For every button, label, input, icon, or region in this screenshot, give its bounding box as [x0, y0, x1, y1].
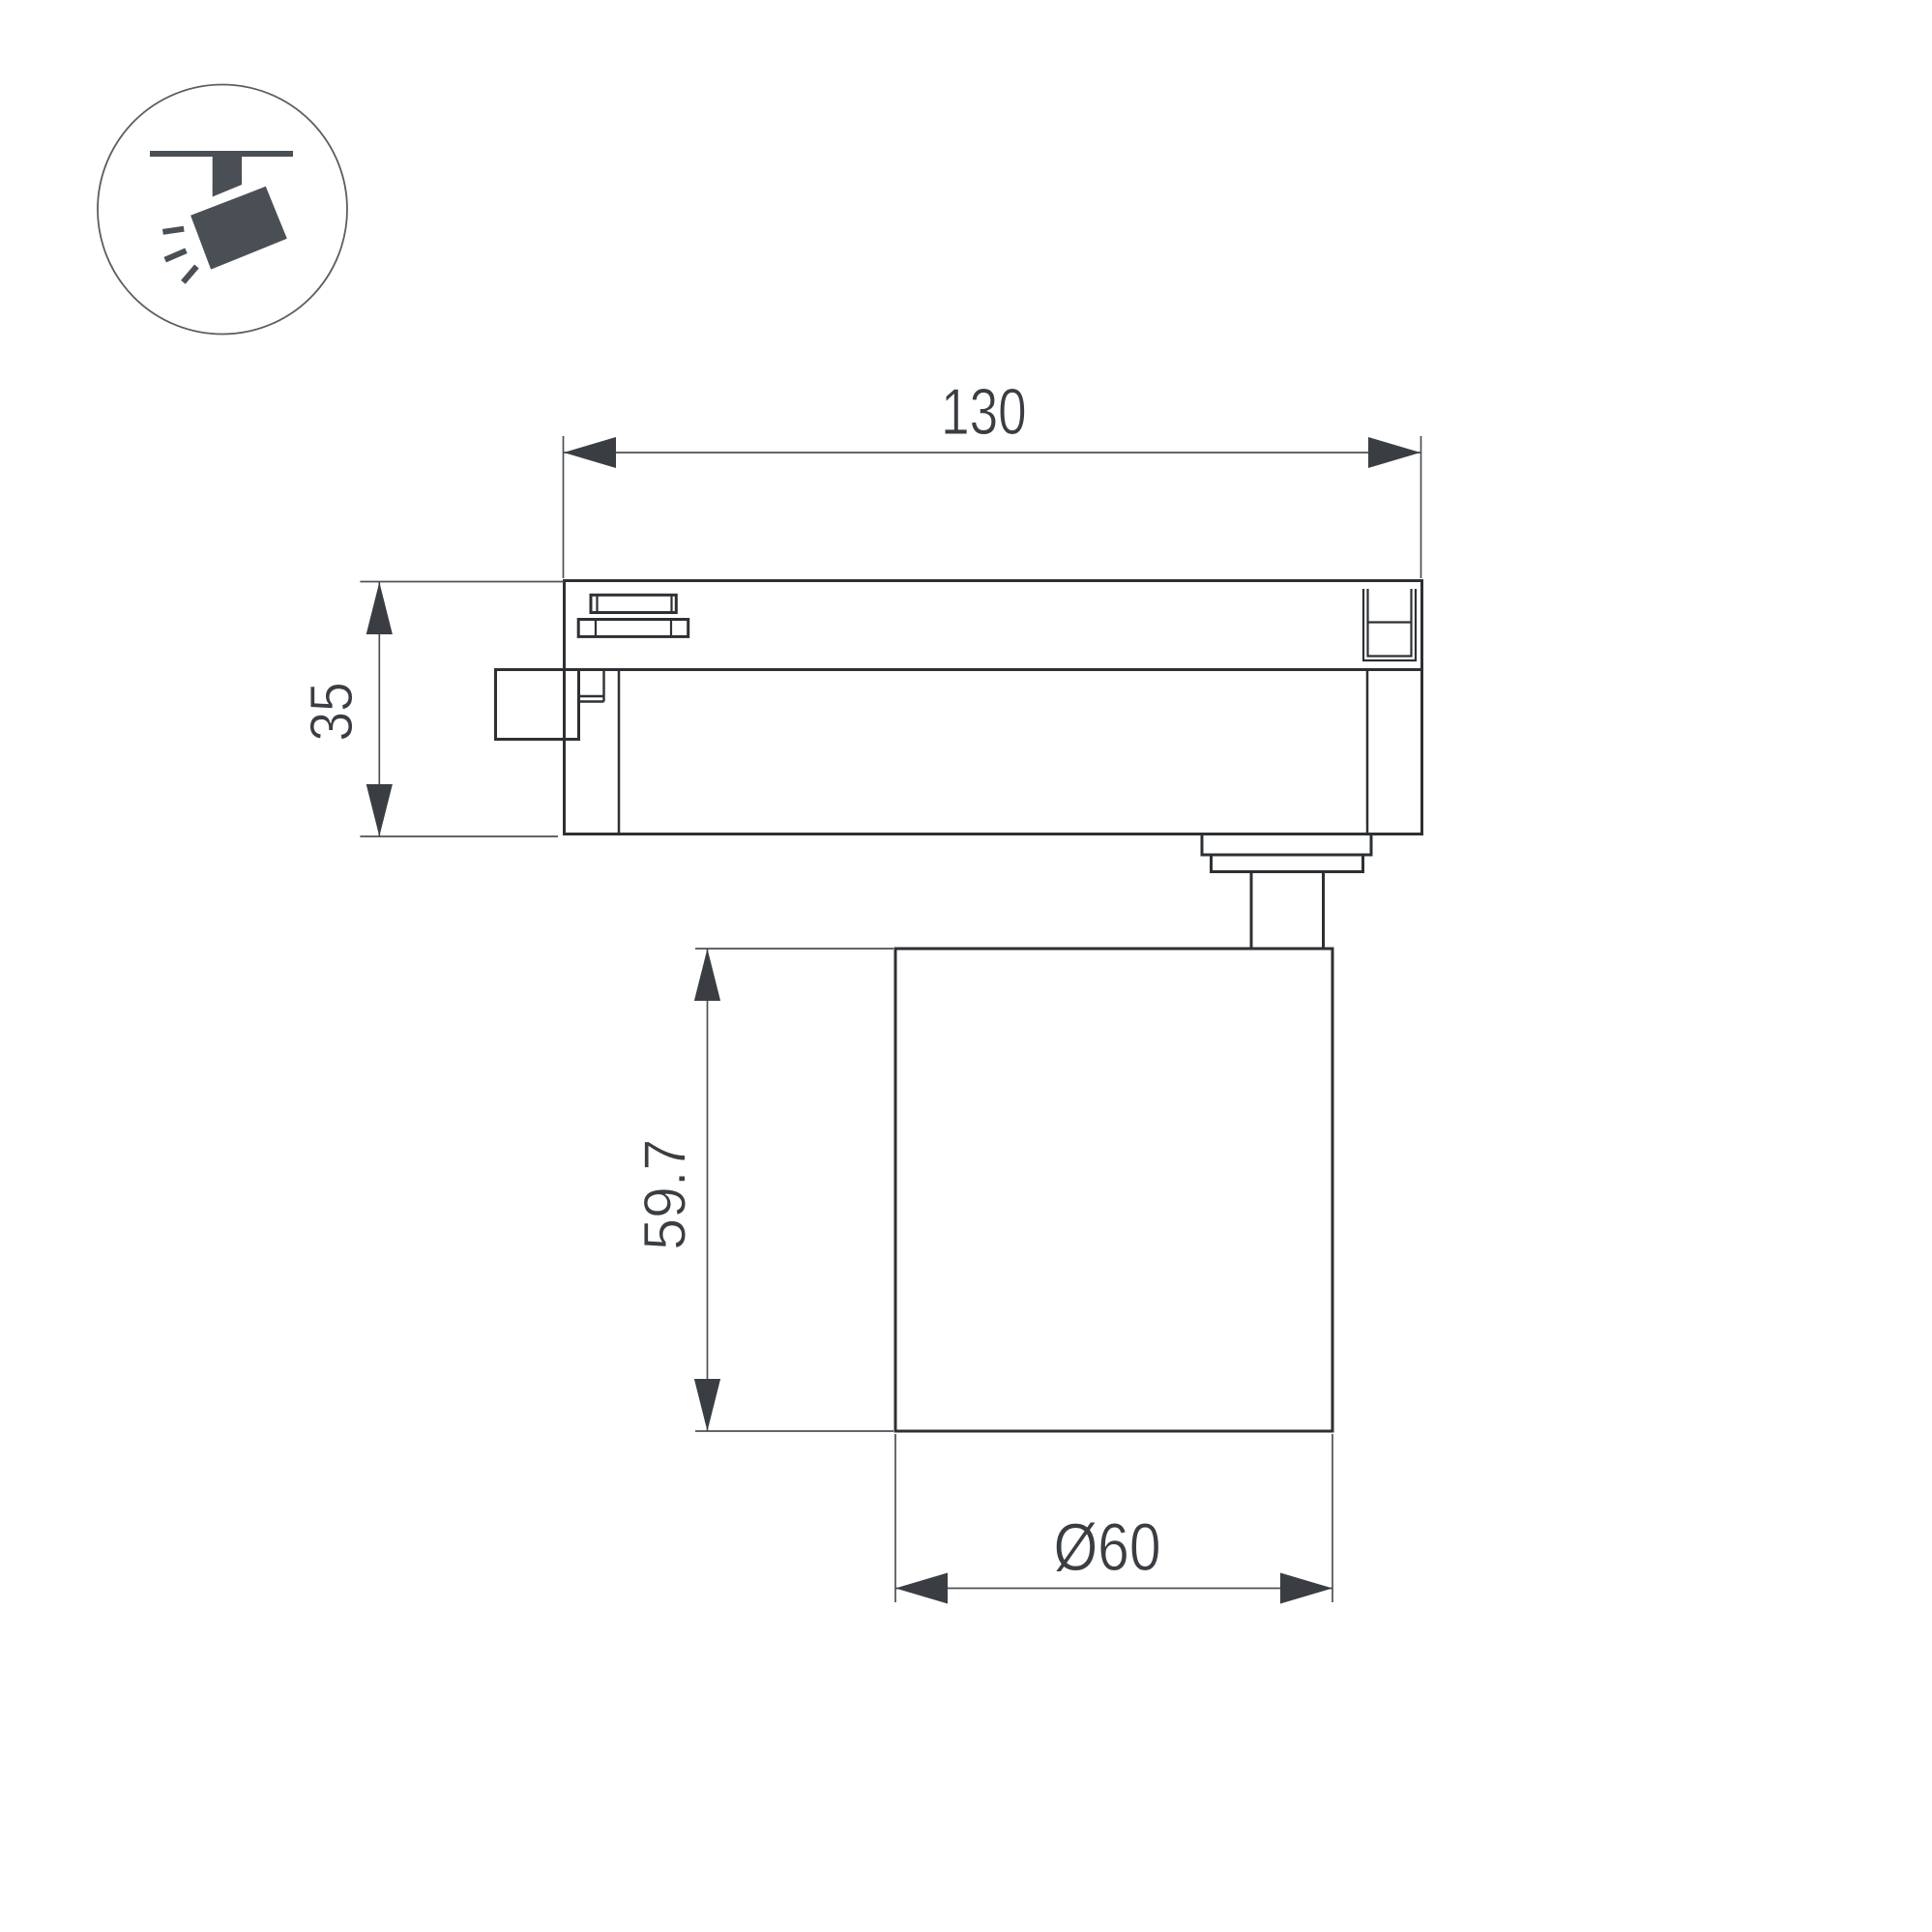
svg-text:35: 35 [299, 682, 366, 741]
svg-text:59.7: 59.7 [632, 1139, 698, 1250]
svg-text:130: 130 [941, 375, 1026, 449]
svg-text:Ø60: Ø60 [1053, 1508, 1160, 1585]
